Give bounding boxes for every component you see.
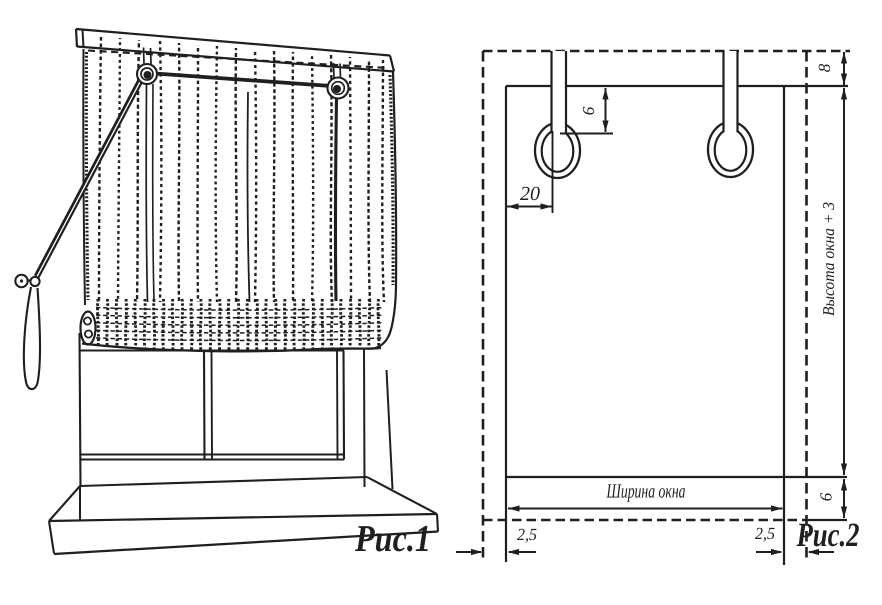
svg-text:2,5: 2,5	[755, 524, 775, 543]
svg-text:Высота окна + 3: Высота окна + 3	[819, 202, 838, 316]
svg-text:20: 20	[520, 183, 540, 205]
svg-text:6: 6	[817, 492, 836, 501]
svg-text:Ширина окна: Ширина окна	[606, 481, 686, 503]
svg-text:8: 8	[815, 63, 834, 72]
svg-text:Рис.2: Рис.2	[796, 517, 860, 554]
svg-text:6: 6	[579, 106, 598, 115]
svg-text:2,5: 2,5	[517, 525, 537, 544]
svg-text:Рис.1: Рис.1	[354, 518, 431, 560]
